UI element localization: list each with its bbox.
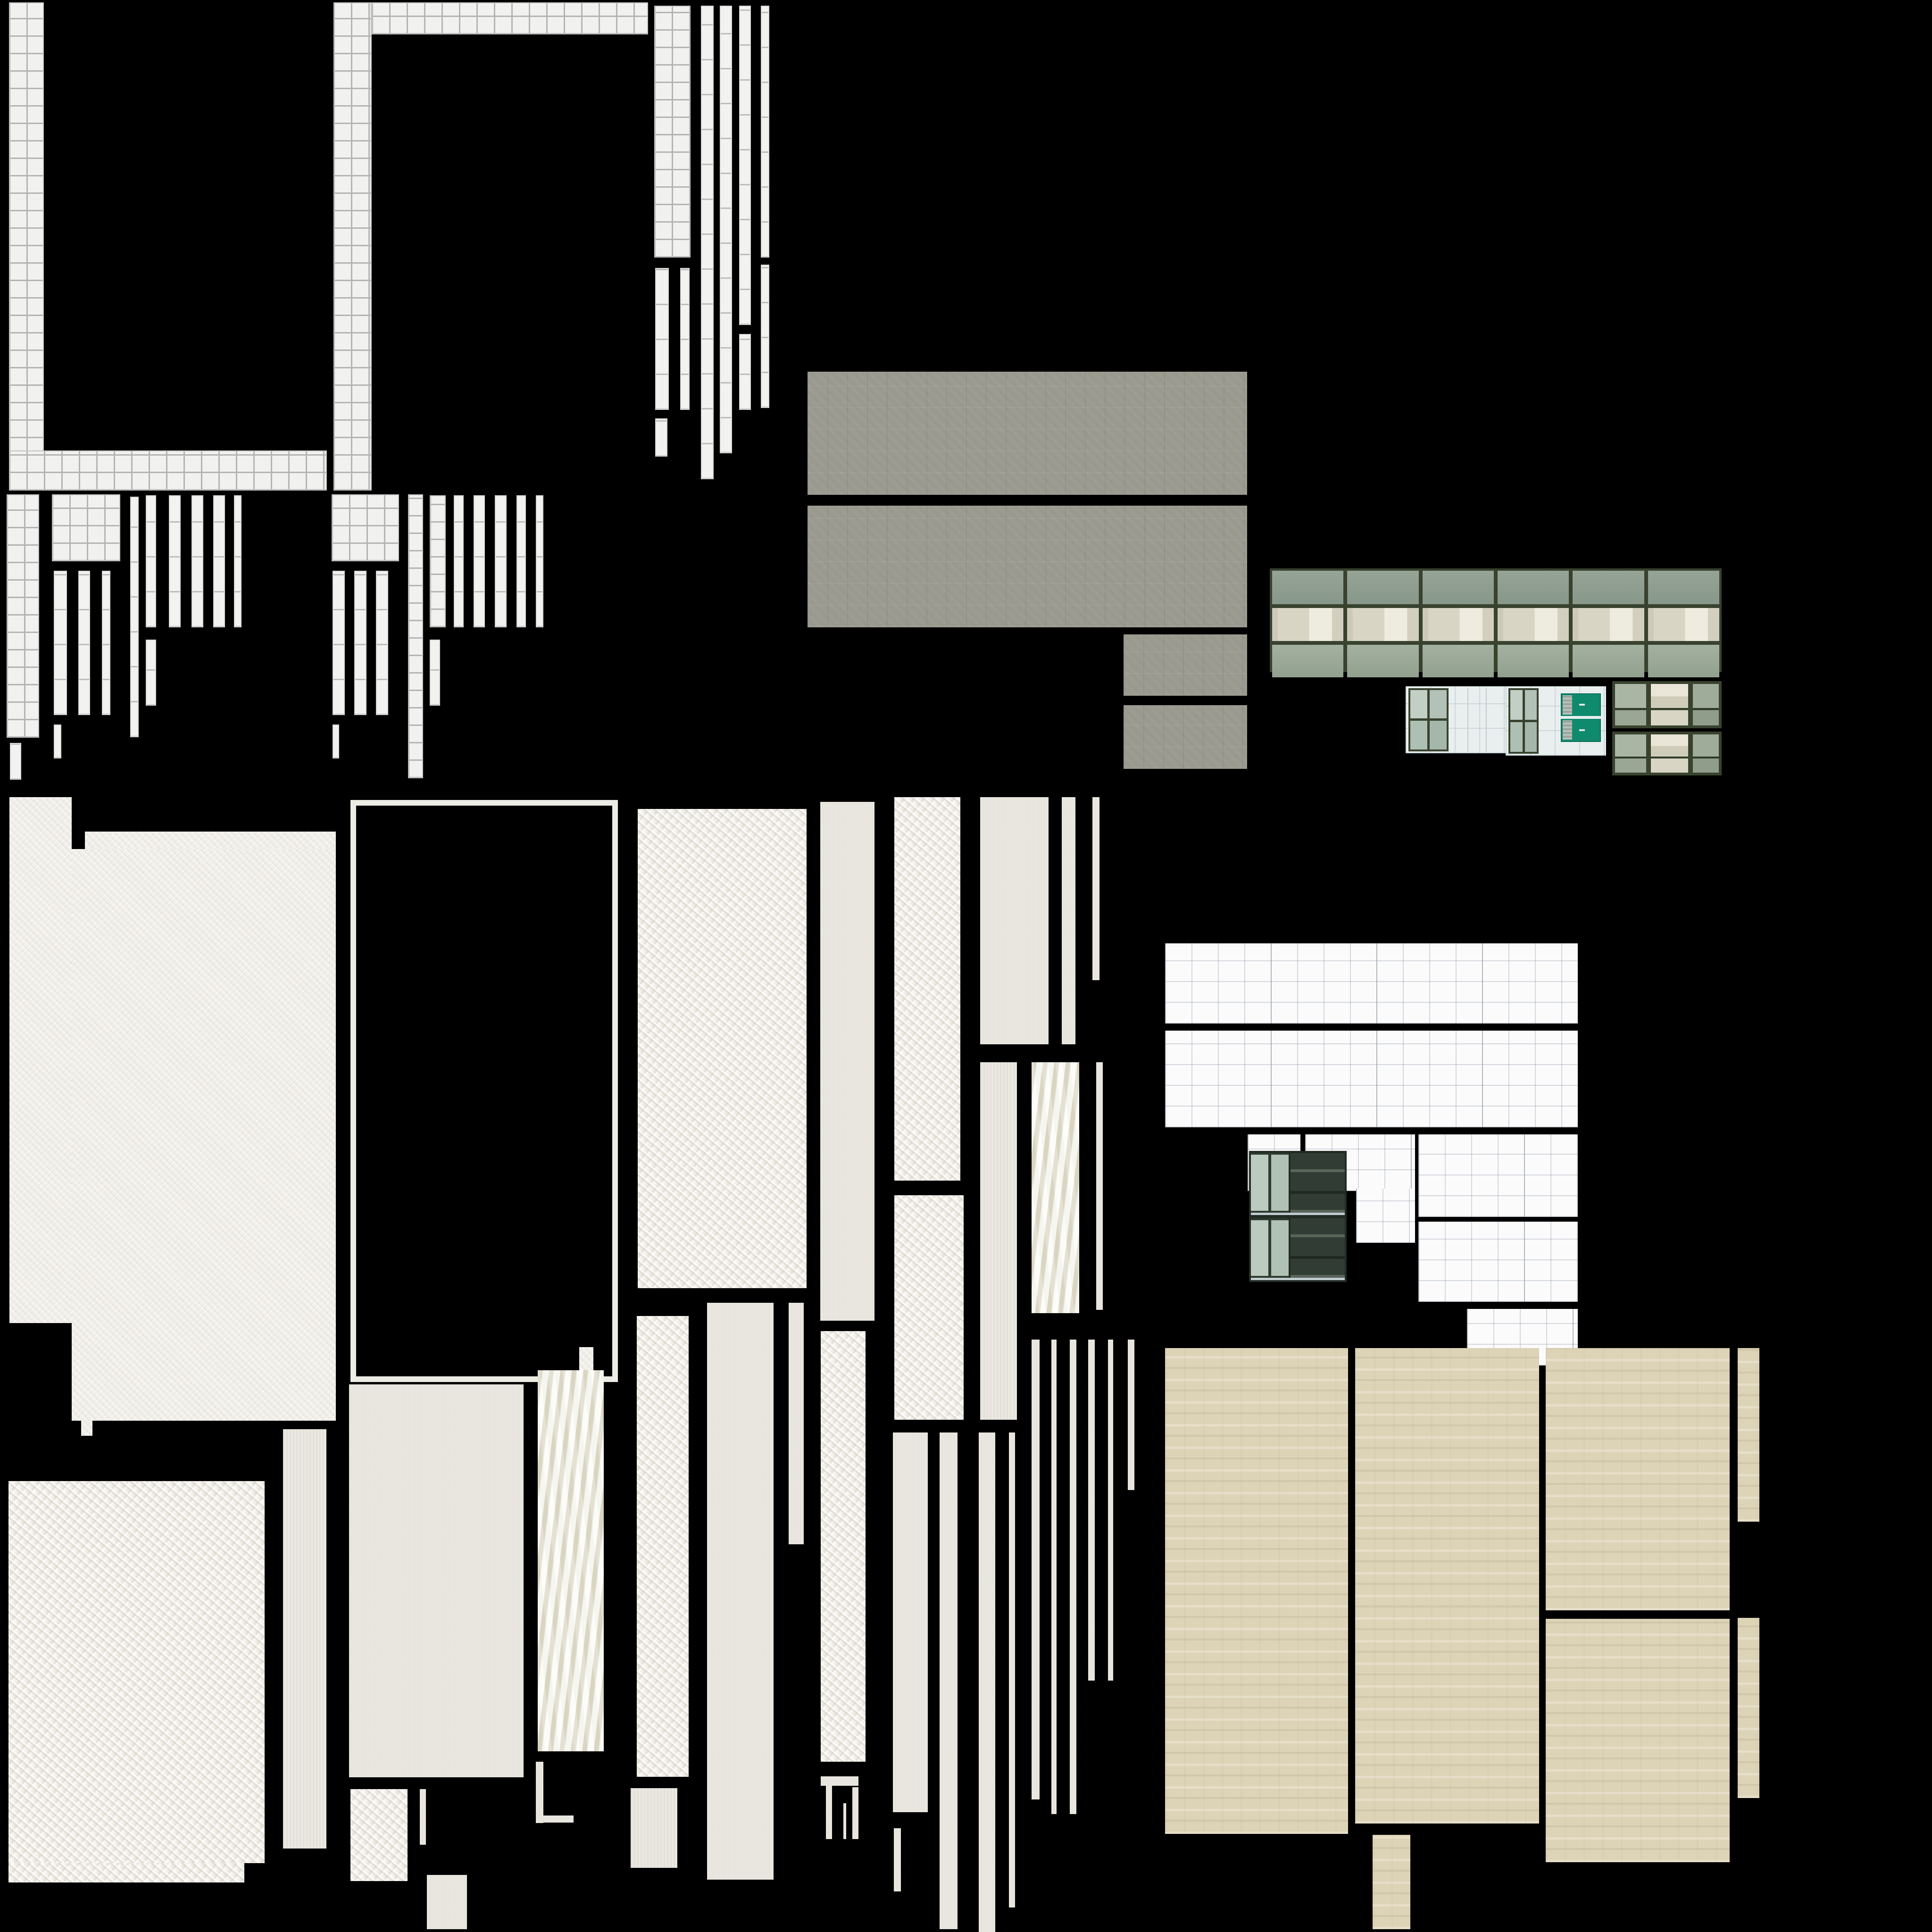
bg-panel (349, 1384, 524, 1777)
s-strip (821, 1331, 866, 1762)
door-handle-mark (1579, 704, 1585, 706)
glass-window-cell (1423, 645, 1494, 677)
tl-top-bar (372, 2, 648, 34)
glass-window-cell (1498, 645, 1569, 677)
s4a-strip (761, 6, 769, 258)
thin-1 (1032, 1340, 1040, 1799)
br-s2 (354, 571, 366, 715)
s-tick-2 (843, 1803, 846, 1839)
glass-window-cell (1272, 608, 1343, 641)
thin-5 (1108, 1340, 1113, 1681)
reflective-glass-pane (1291, 1218, 1345, 1278)
beige-strip-1 (1738, 1348, 1759, 1522)
gray-panel-3 (1124, 634, 1247, 696)
n-strip (1092, 797, 1099, 980)
bl-s1 (54, 571, 67, 715)
beige-strip-2 (1738, 1618, 1759, 1798)
bl-c2 (169, 495, 181, 627)
l-panel (980, 797, 1049, 1044)
p-strip (637, 1316, 689, 1777)
br-c2 (454, 495, 464, 627)
gray-panel-1 (808, 372, 1247, 495)
w5-grid (1418, 1134, 1578, 1217)
glass-pane (1615, 734, 1646, 773)
glass-window-cell (1573, 571, 1644, 604)
y-strip (283, 1429, 326, 1849)
w1-grid (1165, 943, 1578, 1024)
s3b-strip (739, 334, 751, 410)
glass-pane (1410, 690, 1427, 718)
k-strip (894, 797, 960, 1181)
bg3-sliver (420, 1789, 426, 1845)
glass-reflect (1249, 1151, 1347, 1282)
w7-grid (1418, 1222, 1578, 1302)
br-c6 (536, 495, 543, 627)
beige-2 (1355, 1348, 1539, 1824)
door-divider-band (1561, 716, 1601, 719)
f-main-body (72, 849, 336, 1421)
glass-pane (1430, 690, 1447, 718)
thin-2 (1051, 1340, 1057, 1814)
br-c3 (474, 495, 485, 627)
s-tick-3 (852, 1787, 858, 1839)
glass-pane (1693, 734, 1719, 773)
door-sidelight-glass (1508, 688, 1539, 753)
reflective-glass-pane (1291, 1153, 1345, 1213)
door-handle-mark (1579, 729, 1585, 731)
door-panel-teal (1506, 686, 1606, 756)
br-tiny (333, 724, 339, 758)
glass-window-cell (1648, 608, 1719, 641)
glass-window-cell (1648, 645, 1719, 677)
glass-window-cell (1423, 571, 1494, 604)
bl-wide-strip (7, 494, 39, 738)
g-black-frame (350, 800, 618, 1382)
e4-strip (655, 418, 667, 457)
s4b-strip (761, 265, 769, 408)
o-strip (980, 1062, 1017, 1420)
glass-facade (1270, 568, 1722, 672)
glass-window-cell (1347, 645, 1418, 677)
bg4-small (427, 1875, 467, 1929)
teal-double-door (1561, 693, 1601, 742)
f-bottom-tab (81, 1421, 92, 1436)
i-strip (538, 1370, 604, 1751)
br-tall-strip (408, 494, 423, 778)
bl-c1 (146, 495, 156, 627)
glass-window-cell (1347, 571, 1418, 604)
panel-seam (1467, 688, 1468, 752)
f-top-edge (85, 832, 336, 850)
pale-glass-pane (1251, 1153, 1289, 1213)
glass-pane (1615, 684, 1646, 725)
x-main (8, 1481, 265, 1863)
br-c1 (430, 495, 446, 627)
lcorner-vert (536, 1762, 543, 1823)
bl-c5 (234, 495, 241, 627)
r-strip (789, 1303, 804, 1544)
br-block (332, 494, 399, 561)
br-s1 (333, 571, 345, 715)
w6-grid (1356, 1189, 1415, 1243)
br-c4 (495, 495, 507, 627)
thin-4 (1088, 1340, 1095, 1681)
tl-bottom-bar (9, 450, 327, 491)
glass-pane (1430, 721, 1447, 749)
beige-2-tab (1373, 1835, 1410, 1929)
bl-c-low (146, 640, 156, 706)
bl-c4 (213, 495, 225, 627)
thin-3 (1070, 1340, 1076, 1814)
br-c-low (430, 640, 440, 706)
bl-s3 (102, 571, 110, 715)
glass-pane (1510, 690, 1522, 720)
s1-strip (701, 6, 714, 479)
glass-pane-bright (1651, 734, 1688, 773)
br-s3 (376, 571, 388, 715)
glass-window-cell (1498, 608, 1569, 641)
door-louver-panel (1563, 695, 1572, 715)
glass-window-cell (1573, 608, 1644, 641)
glass-small-2 (1612, 732, 1722, 775)
bl-block (52, 494, 120, 561)
br-c5 (516, 495, 526, 627)
e3-strip (680, 268, 690, 410)
t3-strip (979, 1432, 995, 1932)
glass-window-cell (1498, 571, 1569, 604)
glass-reflect-row (1251, 1153, 1345, 1215)
tl-left-strip (9, 2, 44, 491)
texture-atlas (0, 0, 1932, 1932)
s-bracket-bar (821, 1776, 858, 1786)
lcorner-foot (543, 1815, 574, 1823)
bl-sliver (10, 743, 21, 780)
glass-window-cell (1272, 645, 1343, 677)
e2-strip (655, 268, 669, 410)
glass-pane-bright (1651, 684, 1688, 725)
m-strip (1062, 797, 1075, 1044)
q2-thin (1096, 1062, 1103, 1310)
p2-wavy (1032, 1062, 1079, 1313)
glass-pane (1525, 722, 1537, 752)
s3a-strip (739, 6, 751, 325)
k2-strip (894, 1195, 964, 1420)
thin-6 (1128, 1340, 1134, 1490)
glass-window-cell (1573, 645, 1644, 677)
beige-4 (1546, 1619, 1730, 1862)
q-strip (707, 1303, 774, 1880)
bg2-strip (350, 1789, 408, 1881)
bl-s2 (78, 571, 90, 715)
p2b-strip (631, 1788, 677, 1868)
x-bottom (8, 1863, 244, 1882)
panel-seam (1486, 688, 1487, 752)
bl-tiny (54, 724, 61, 758)
door-panel-white (1406, 686, 1506, 753)
bl-c3 (192, 495, 203, 627)
s2-strip (720, 6, 732, 453)
bl-thin-tall (130, 497, 139, 737)
pale-glass-pane (1251, 1218, 1289, 1278)
t4-strip (1009, 1432, 1015, 1907)
door-louver-panel (1563, 720, 1572, 740)
glass-pane (1525, 690, 1537, 720)
glass-pane (1510, 722, 1522, 752)
glass-reflect-row (1251, 1218, 1345, 1281)
s-tick-1 (826, 1786, 832, 1839)
glass-window-cell (1423, 608, 1494, 641)
glass-window-cell (1347, 608, 1418, 641)
tl-right-strip (333, 2, 372, 491)
e1-block (654, 6, 691, 258)
j-strip (820, 802, 874, 1321)
beige-1 (1165, 1348, 1348, 1834)
t1-strip (893, 1432, 928, 1812)
door-sidelight-glass (1408, 688, 1449, 751)
f-left-column (9, 797, 72, 1323)
glass-pane (1693, 684, 1719, 725)
w2-grid (1165, 1031, 1578, 1127)
glass-window-cell (1272, 571, 1343, 604)
beige-3 (1546, 1348, 1730, 1610)
h-wide-strip (638, 809, 807, 1288)
t1b-strip (894, 1828, 901, 1891)
glass-window-cell (1648, 571, 1719, 604)
glass-small-1 (1612, 681, 1722, 728)
glass-pane (1410, 721, 1427, 749)
gray-panel-4 (1124, 705, 1247, 769)
t2-strip (940, 1432, 958, 1929)
gray-panel-2 (808, 506, 1247, 627)
